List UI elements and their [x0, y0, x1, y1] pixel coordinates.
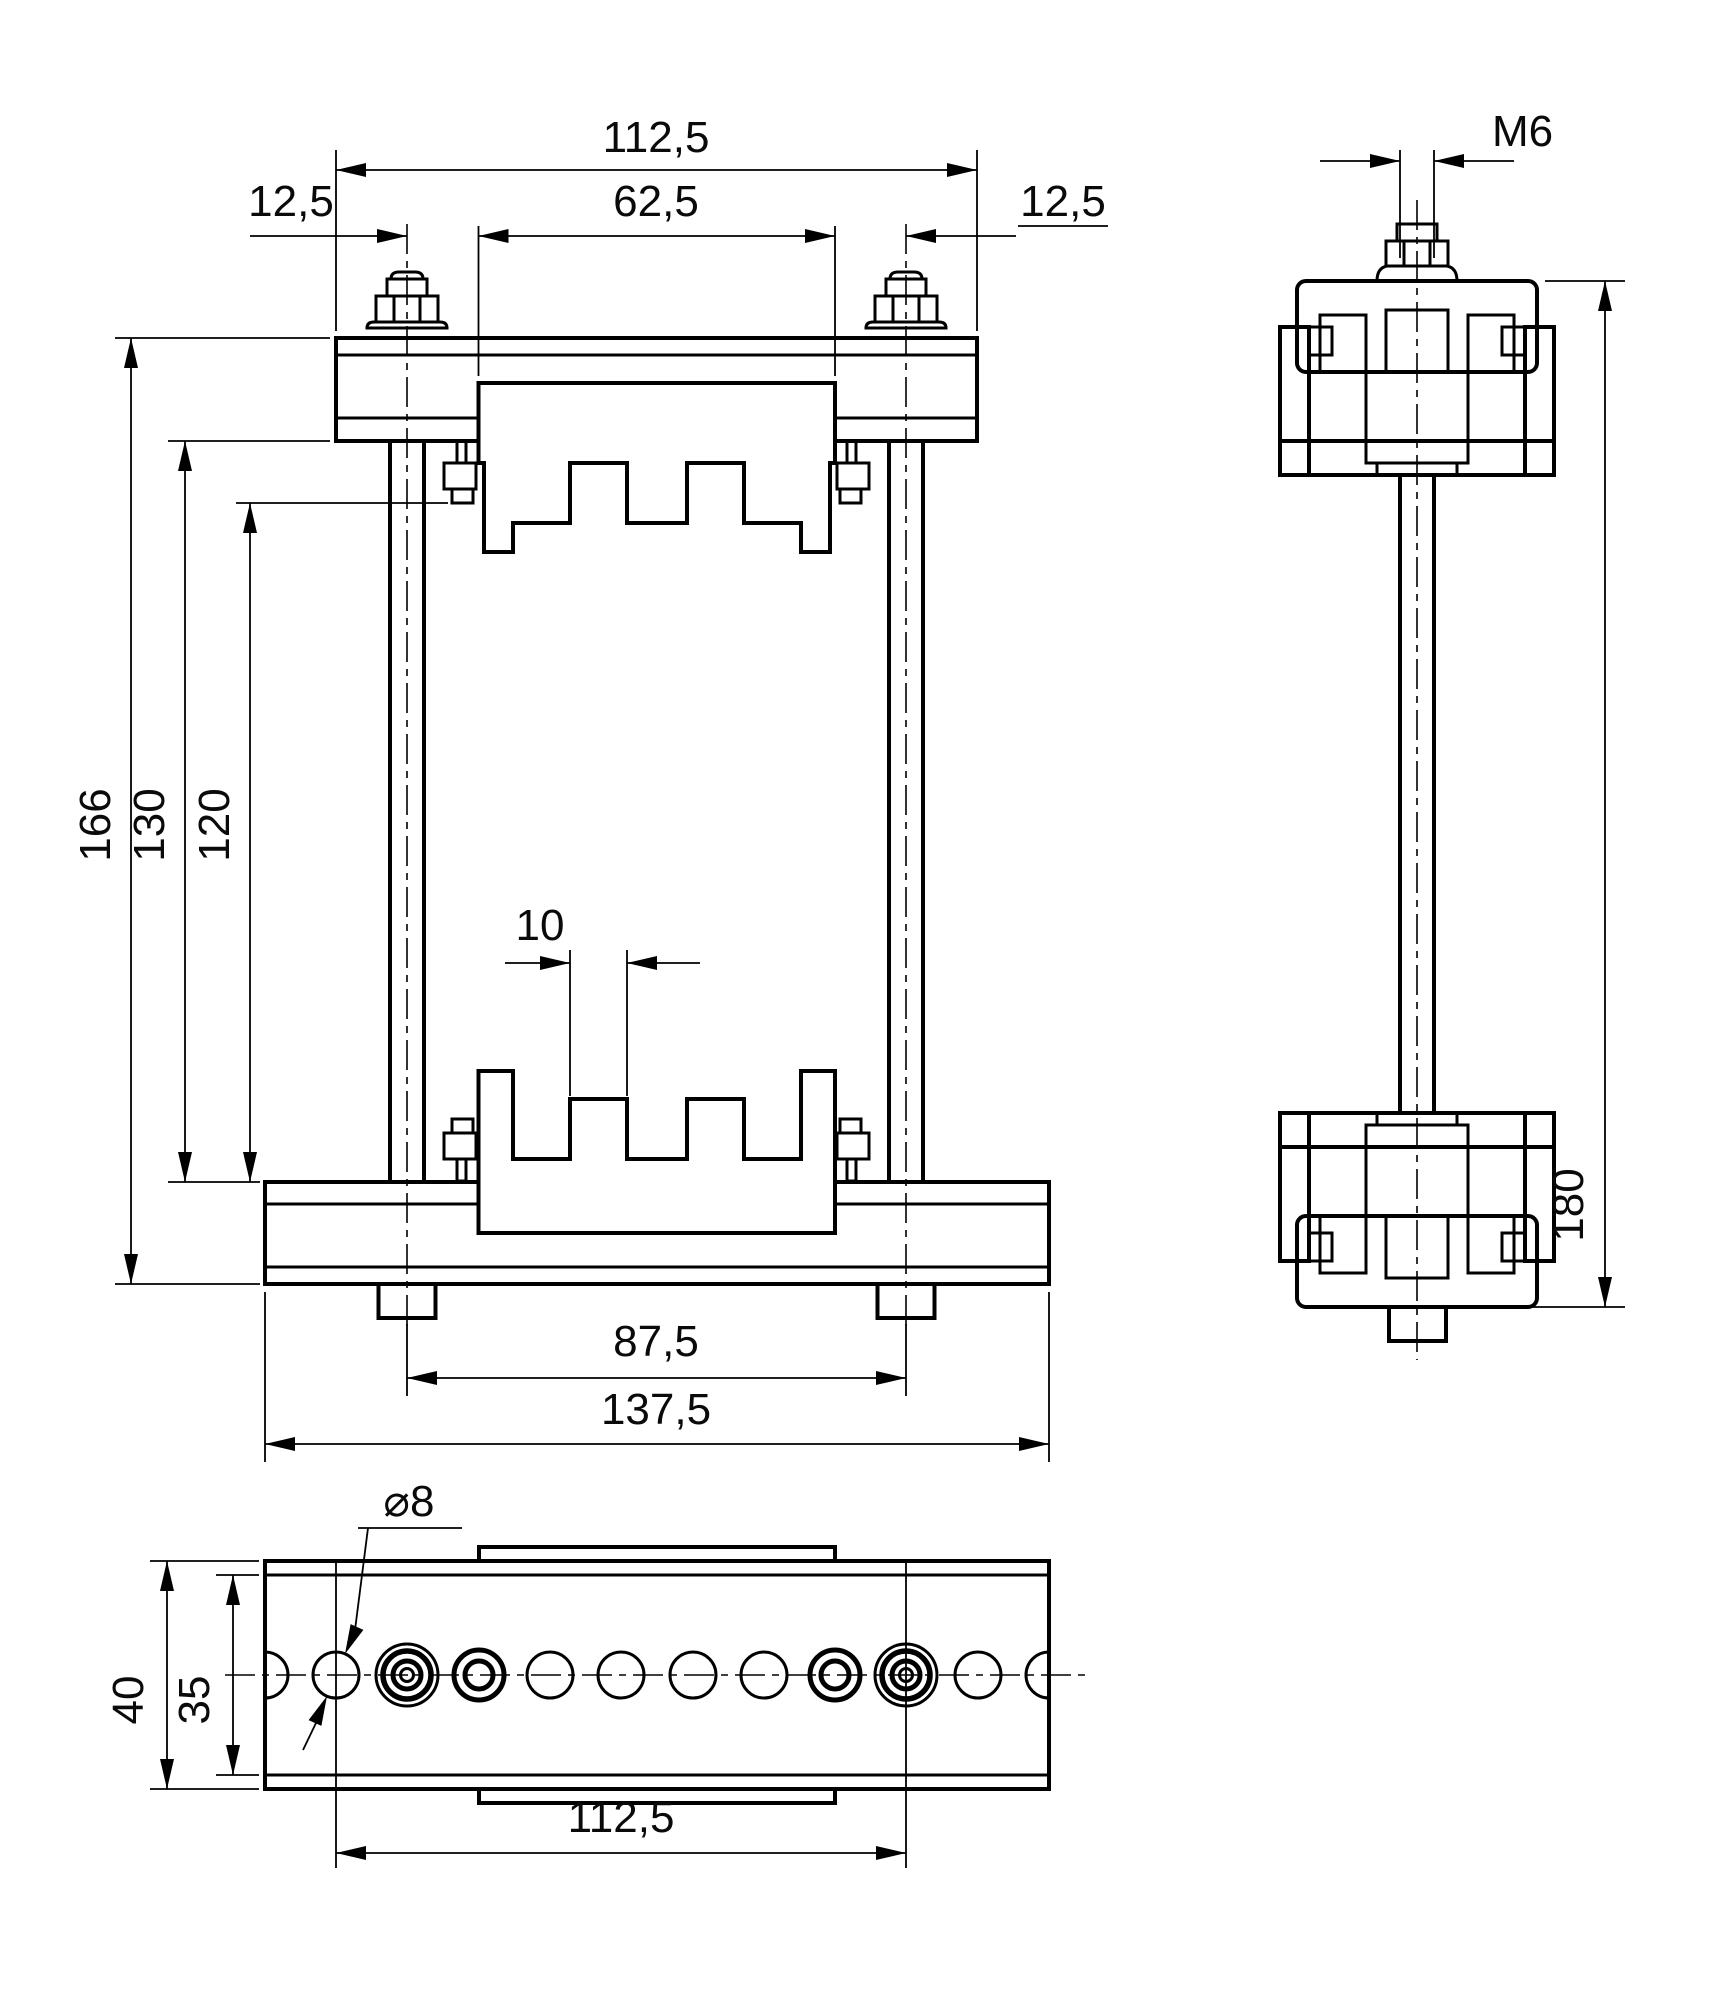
upper-jaw — [479, 383, 836, 552]
front-dimensions: 112,5 12,5 62,5 12,5 166 — [71, 113, 1108, 1462]
dim-plate-width: 112,5 — [603, 113, 710, 162]
technical-drawing-canvas: 112,5 12,5 62,5 12,5 166 — [0, 0, 1710, 2000]
dim-rod-offset-left: 12,5 — [248, 177, 334, 226]
dim-rod-offset-right: 12,5 — [1020, 177, 1106, 226]
dim-hole-row-span: 112,5 — [568, 1793, 675, 1842]
threaded-rods — [390, 441, 923, 1182]
dim-side-height: 180 — [1544, 1168, 1593, 1241]
bottom-tab-top — [479, 1547, 835, 1561]
dim-overall-height: 166 — [71, 788, 120, 861]
dim-base-width: 137,5 — [601, 1385, 711, 1434]
dim-plate-depth: 40 — [104, 1676, 153, 1725]
bottom-view: ⌀8 40 35 112,5 — [104, 1477, 1089, 1868]
dim-inner-depth: 35 — [170, 1676, 219, 1725]
upper-claws — [444, 441, 869, 503]
side-view: M6 180 — [1280, 107, 1625, 1360]
drawing-page: 112,5 12,5 62,5 12,5 166 — [0, 0, 1710, 2000]
dim-thread: M6 — [1492, 107, 1553, 156]
dim-hole-diameter: ⌀8 — [384, 1477, 435, 1526]
dim-rod-spacing: 87,5 — [613, 1317, 699, 1366]
dim-opening-height: 120 — [190, 788, 239, 861]
lower-jaw — [479, 1071, 836, 1233]
dim-jaw-width: 62,5 — [613, 177, 699, 226]
dim-tooth-width: 10 — [516, 901, 565, 950]
dim-inner-height: 130 — [125, 788, 174, 861]
front-view: 112,5 12,5 62,5 12,5 166 — [71, 113, 1108, 1462]
top-plate — [336, 338, 977, 441]
